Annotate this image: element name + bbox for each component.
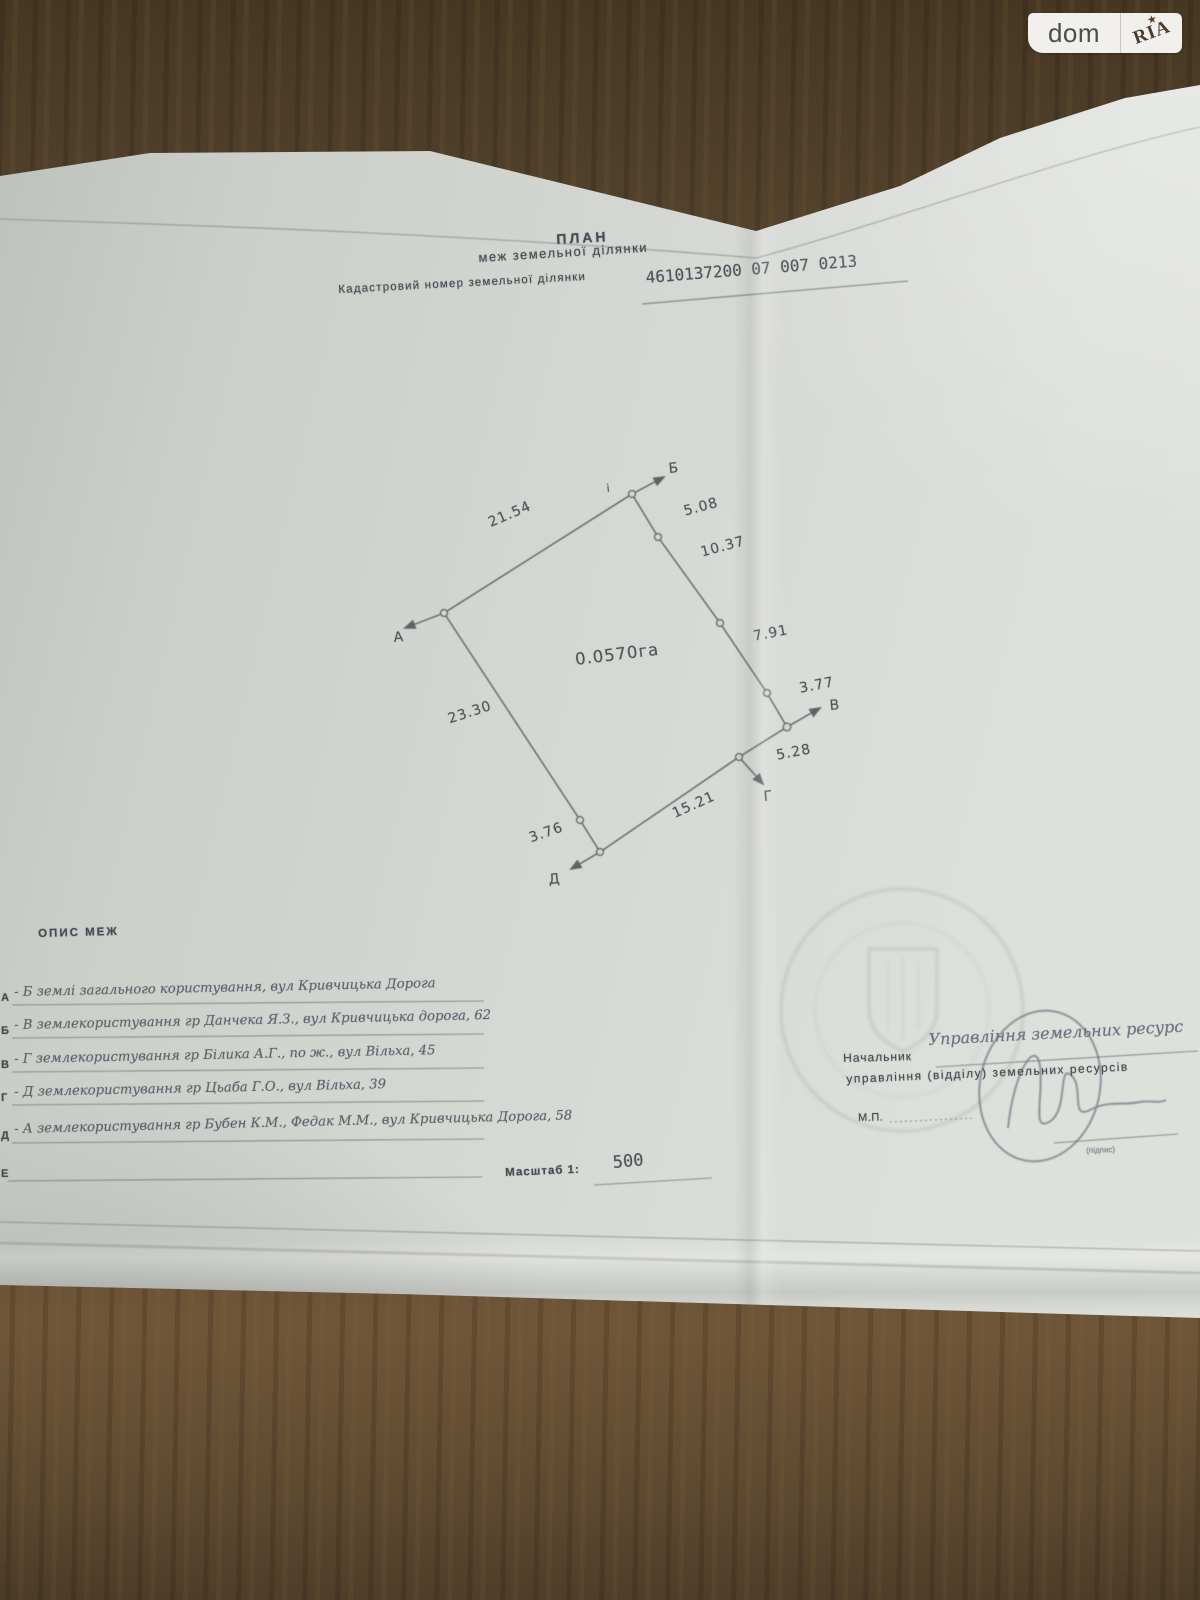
under-sheet-edge: [0, 1243, 1200, 1273]
plot-drawing: [405, 477, 820, 869]
photo-scene: ПЛАН меж земельної ділянки Кадастровий н…: [0, 0, 1200, 1600]
legend-letter: В: [1, 1059, 9, 1071]
round-seal: [781, 889, 1023, 1131]
document-sheet: ПЛАН меж земельної ділянки Кадастровий н…: [0, 0, 1200, 1600]
legend-letter: А: [1, 992, 9, 1004]
dom-logo-text: dom: [1028, 13, 1120, 53]
cadastral-underline: [642, 281, 908, 304]
plot-point-label-v: В: [829, 697, 841, 714]
mp-label: М.П.: [858, 1112, 883, 1124]
scale-value: 500: [612, 1150, 644, 1173]
ria-logo: ★ RIA: [1120, 13, 1182, 53]
legend-letter: Г: [1, 1092, 7, 1104]
plot-point-label-g: Г: [763, 788, 774, 805]
legend-heading: ОПИС МЕЖ: [38, 926, 119, 940]
legend-letter: Б: [1, 1025, 9, 1037]
plot-point-label-a: А: [393, 629, 405, 646]
domria-watermark: dom ★ RIA: [1028, 13, 1182, 53]
legend-letter: Е: [1, 1168, 9, 1180]
legend-letter: Д: [1, 1130, 9, 1142]
ria-logo-text: RIA: [1130, 16, 1173, 50]
plot-point-label-b: Б: [668, 460, 680, 477]
chief-label: Начальник: [843, 1049, 912, 1065]
plot-point-label-d: Д: [548, 871, 561, 888]
signature-caption: (підпис): [1086, 1145, 1115, 1155]
